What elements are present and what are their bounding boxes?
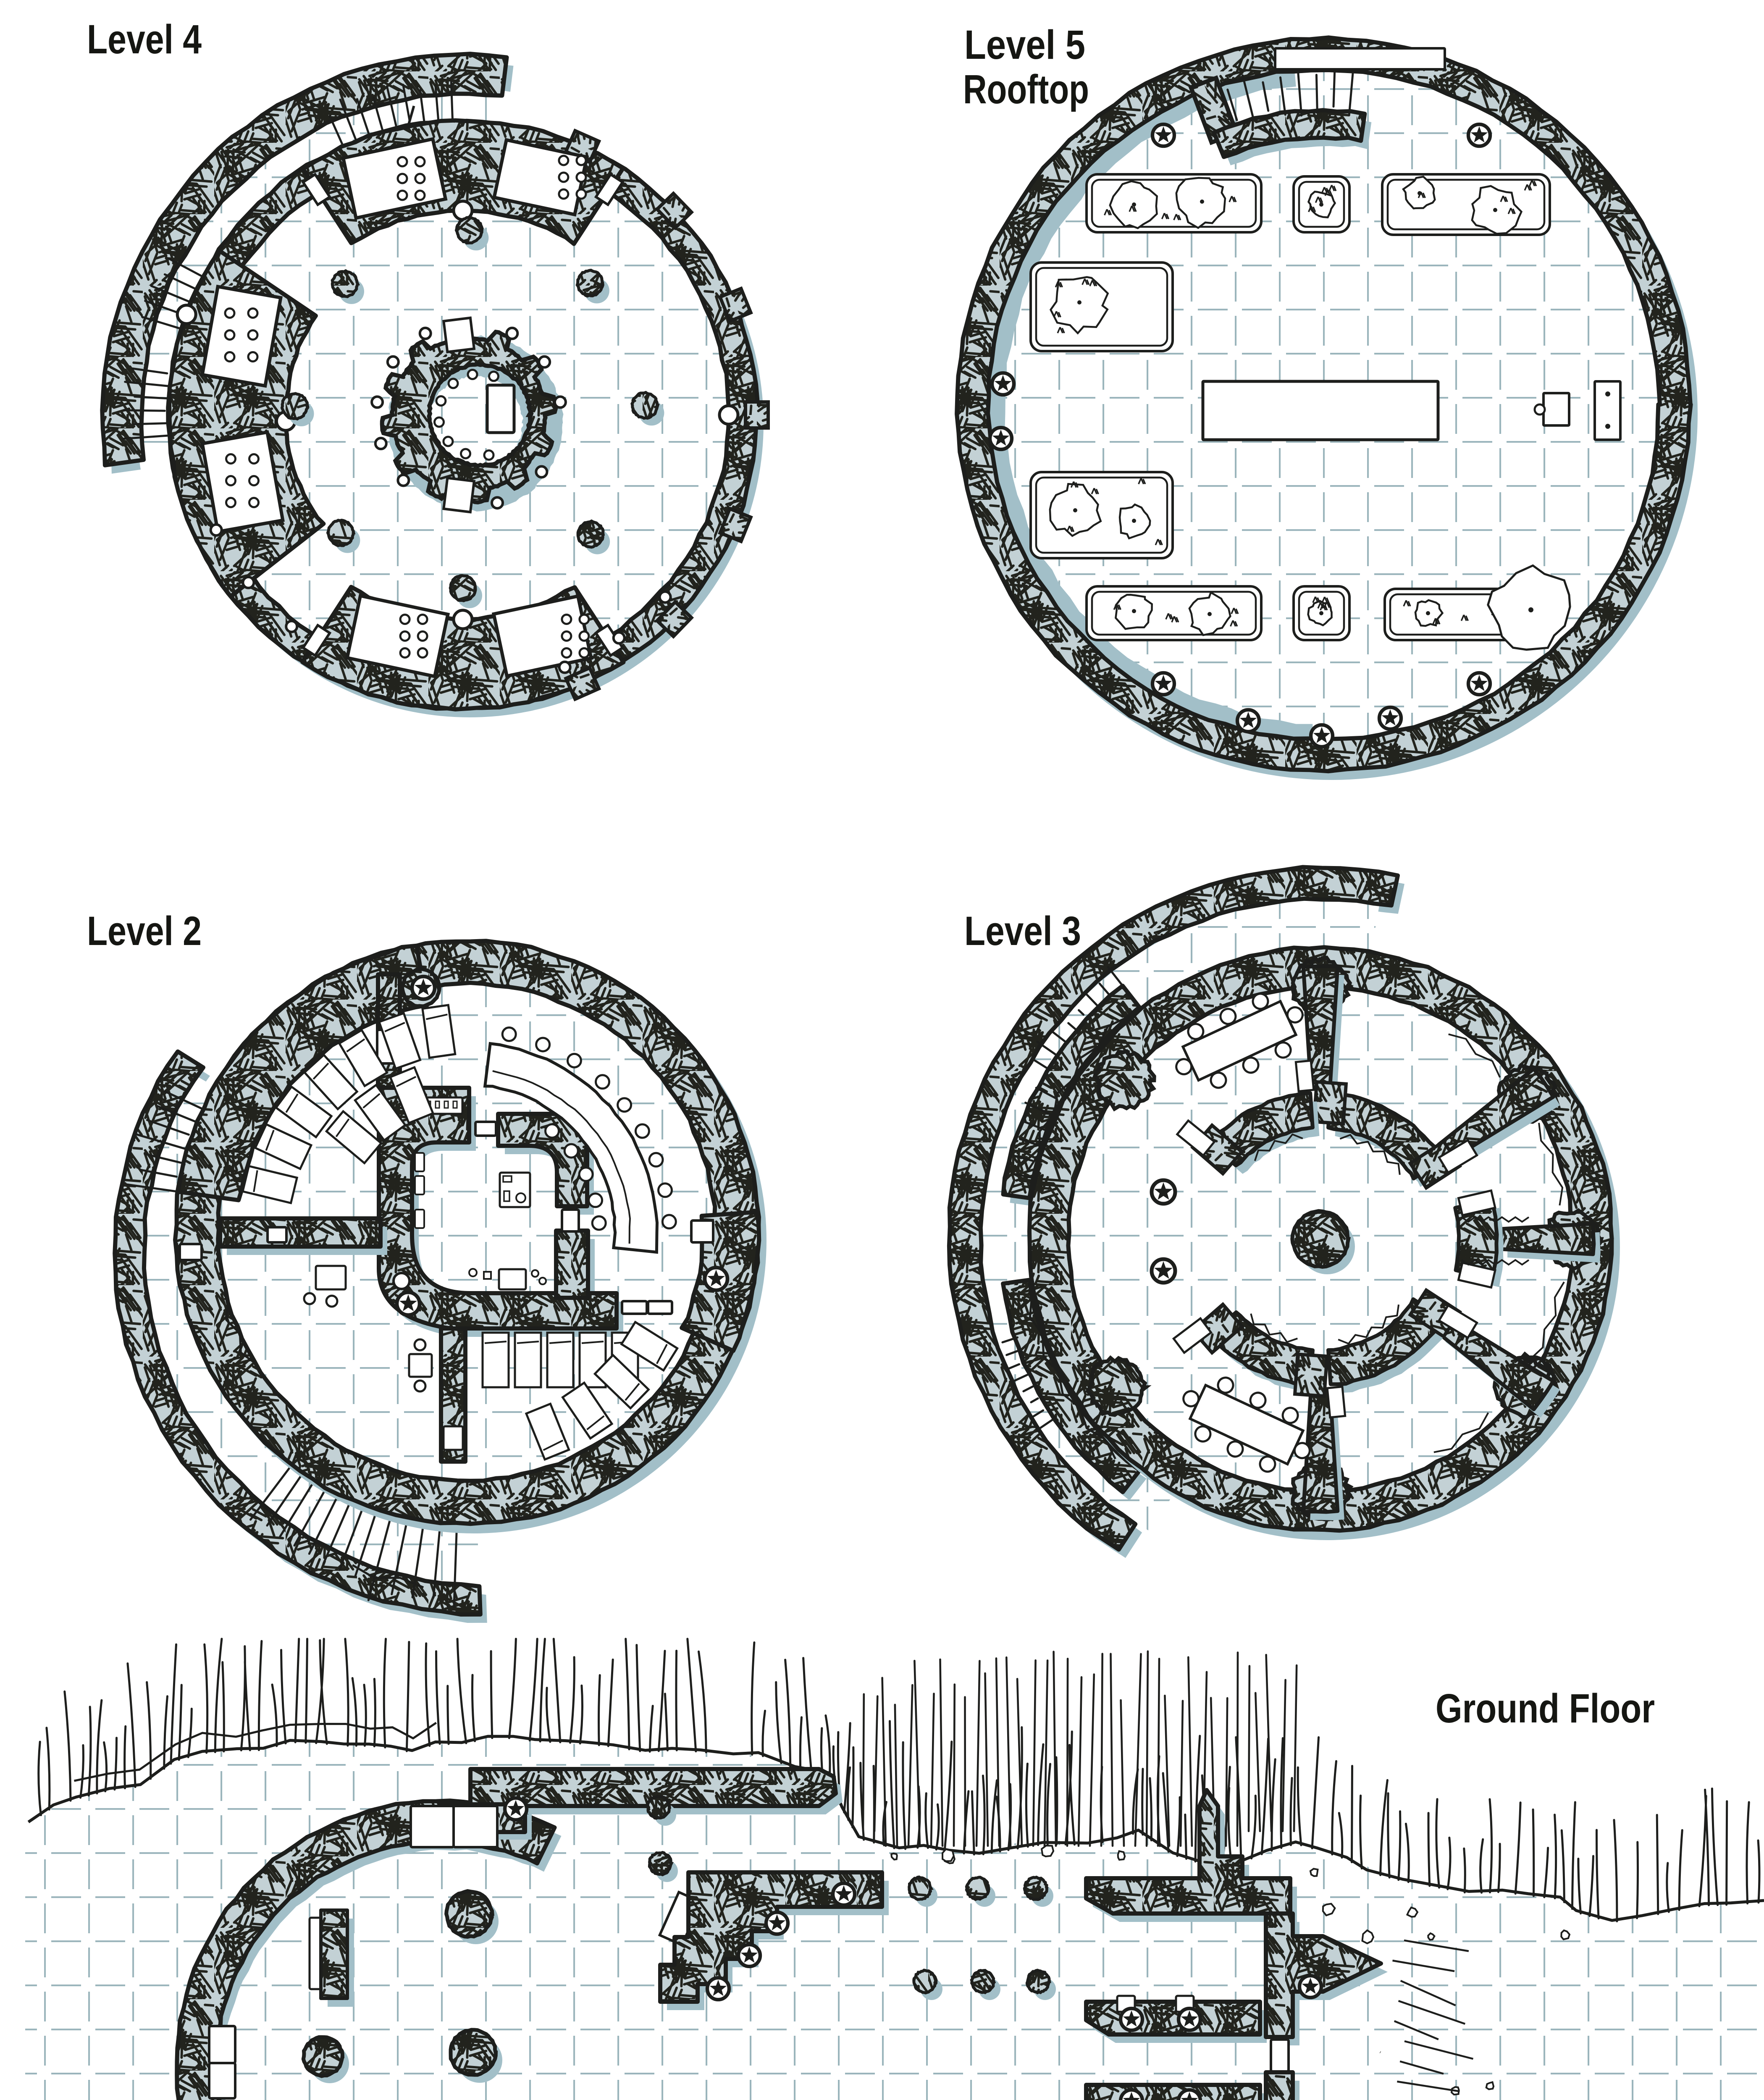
svg-text:Ground Floor: Ground Floor [1436, 1685, 1655, 1731]
svg-text:Level 2: Level 2 [87, 908, 202, 954]
svg-text:Rooftop: Rooftop [963, 66, 1089, 112]
svg-text:Level 3: Level 3 [964, 908, 1081, 954]
svg-text:Level 4: Level 4 [87, 16, 202, 62]
svg-text:Level 5: Level 5 [964, 22, 1085, 68]
